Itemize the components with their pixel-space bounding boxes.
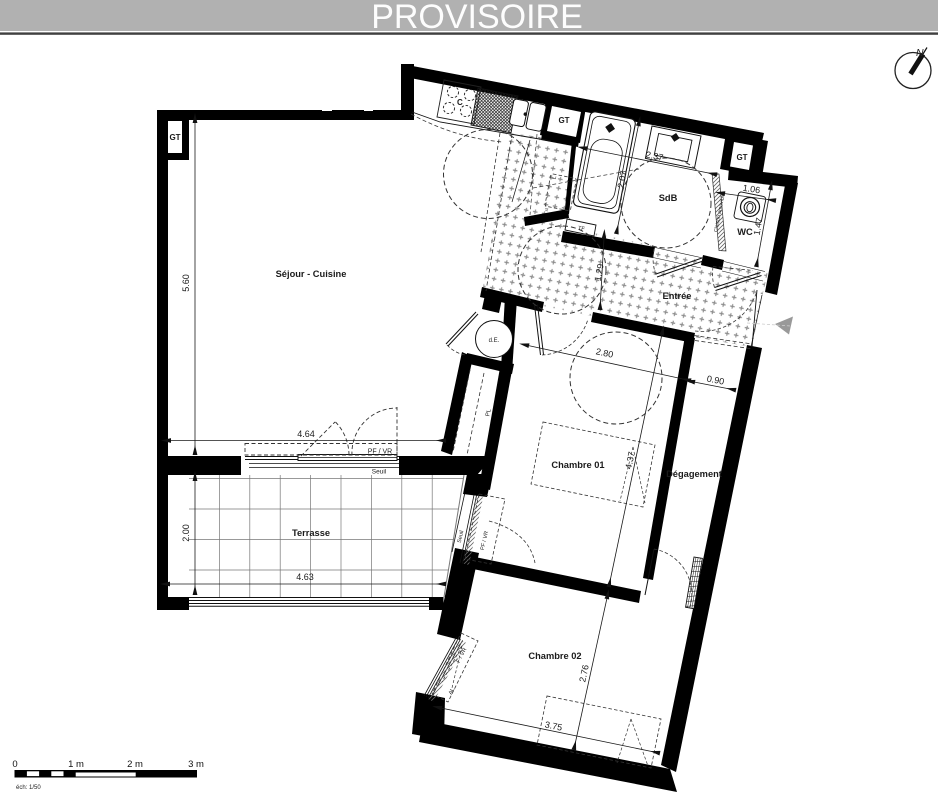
svg-text:éch: 1/50: éch: 1/50 — [16, 785, 41, 791]
svg-text:GT: GT — [169, 133, 180, 142]
svg-text:2.80: 2.80 — [595, 346, 614, 359]
svg-text:Séjour - Cuisine: Séjour - Cuisine — [276, 269, 347, 279]
svg-text:1 m: 1 m — [68, 759, 84, 770]
svg-text:Chambre 01: Chambre 01 — [551, 460, 604, 470]
svg-text:5.60: 5.60 — [181, 274, 191, 292]
svg-text:Chambre 02: Chambre 02 — [528, 651, 581, 661]
svg-text:PF / VR: PF / VR — [368, 449, 393, 456]
svg-text:PF / VR: PF / VR — [480, 531, 490, 551]
svg-text:SdB: SdB — [659, 193, 678, 203]
svg-text:d.E.: d.E. — [489, 338, 500, 344]
svg-text:C: C — [457, 98, 463, 107]
svg-text:2.00: 2.00 — [181, 524, 191, 542]
svg-text:2 m: 2 m — [127, 759, 143, 770]
svg-text:Dégagement: Dégagement — [666, 469, 722, 479]
svg-text:0: 0 — [12, 759, 17, 770]
svg-text:3 m: 3 m — [188, 759, 204, 770]
svg-text:4.63: 4.63 — [296, 572, 314, 582]
svg-text:4.37: 4.37 — [623, 451, 636, 470]
svg-text:3.75: 3.75 — [544, 719, 563, 732]
svg-text:4.64: 4.64 — [297, 429, 315, 439]
svg-text:GT: GT — [558, 116, 569, 125]
svg-text:2.07: 2.07 — [615, 170, 628, 189]
svg-text:N: N — [916, 47, 924, 59]
svg-text:1.06: 1.06 — [742, 183, 761, 196]
svg-text:PROVISOIRE: PROVISOIRE — [371, 0, 583, 36]
svg-text:GT: GT — [736, 153, 747, 162]
svg-text:Seuil: Seuil — [372, 469, 387, 476]
svg-text:WC: WC — [737, 227, 753, 237]
svg-text:Terrasse: Terrasse — [292, 528, 330, 538]
svg-text:Entrée: Entrée — [663, 291, 692, 301]
